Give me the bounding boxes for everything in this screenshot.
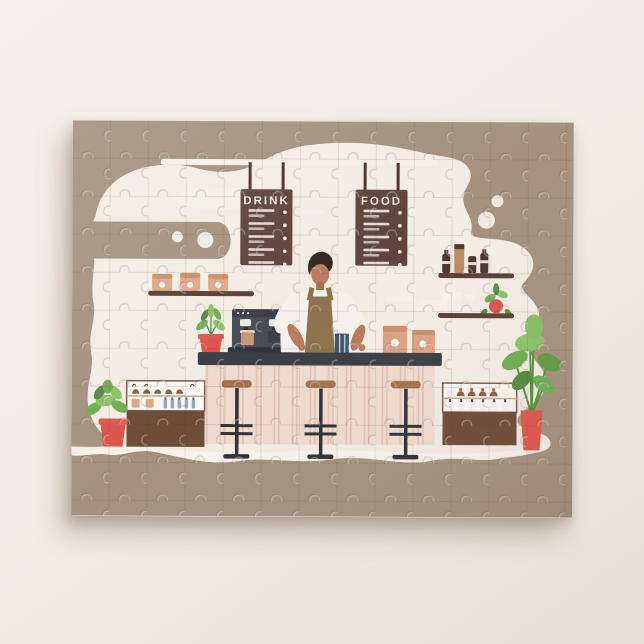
puzzle-artwork: DRINK FOOD: [71, 120, 574, 518]
jigsaw-puzzle: DRINK FOOD: [71, 120, 574, 518]
puzzle-gloss: [71, 120, 574, 517]
product-photo-background: DRINK FOOD: [0, 0, 644, 644]
